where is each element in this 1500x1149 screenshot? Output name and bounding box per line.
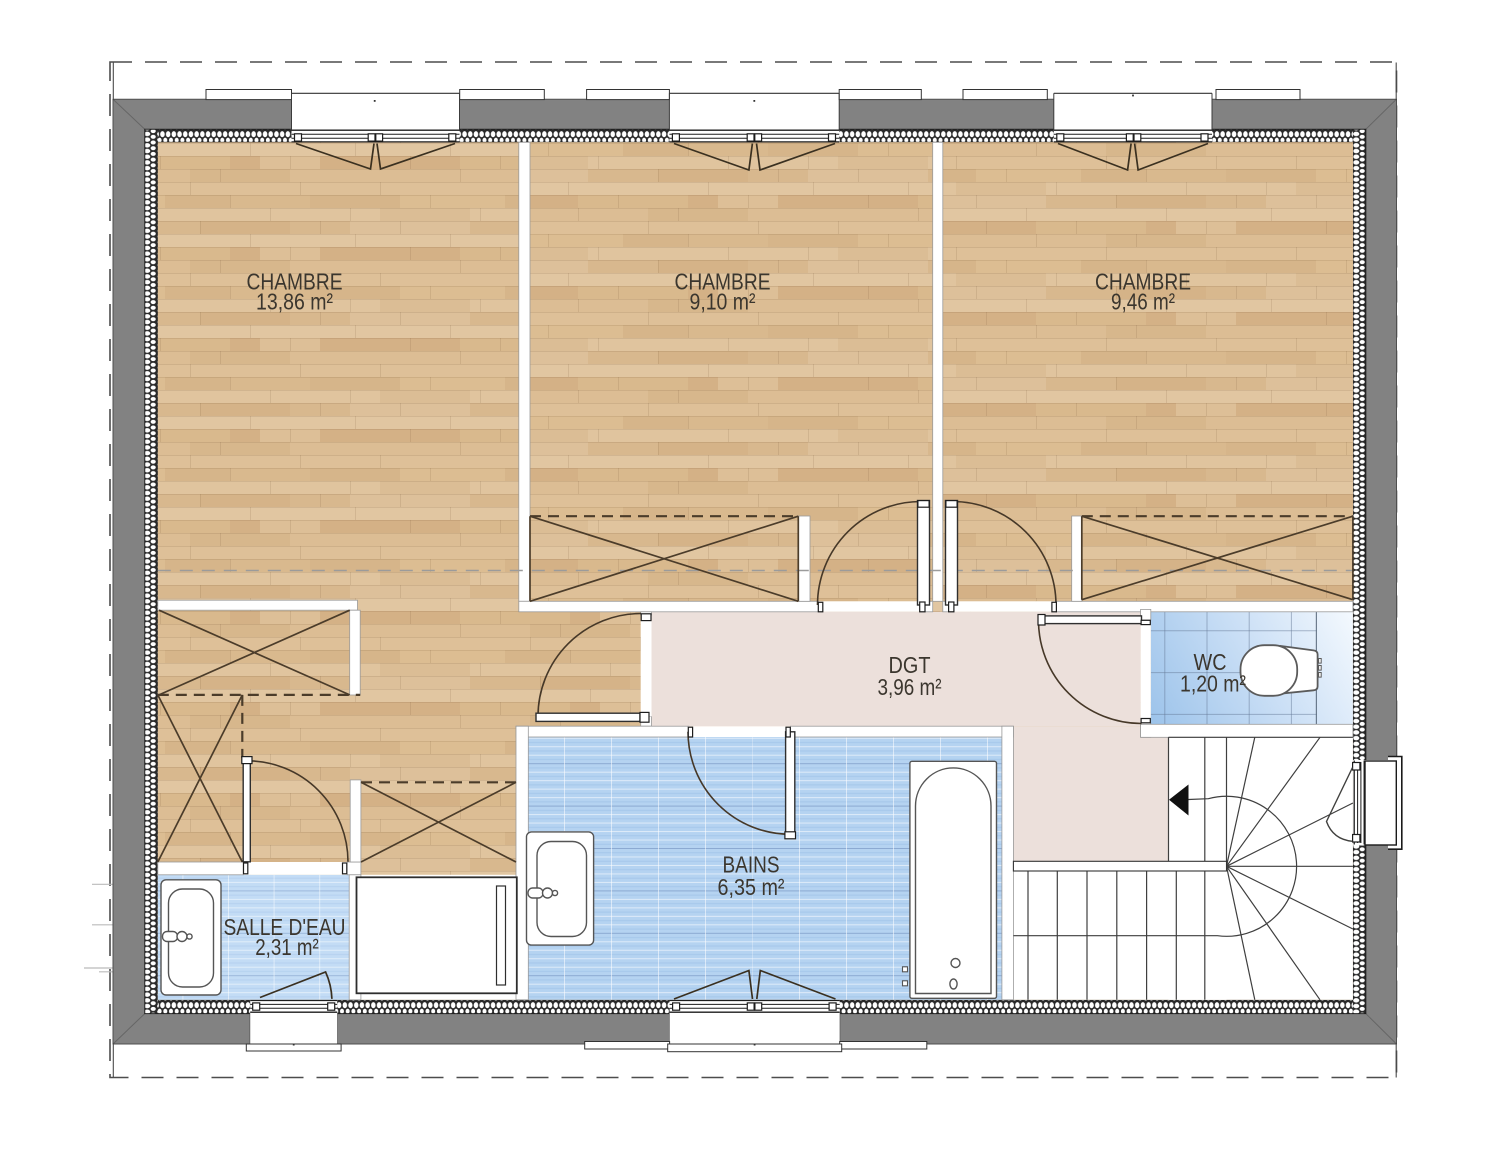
svg-text:2,31 m²: 2,31 m² xyxy=(255,934,319,960)
svg-text:9,46 m²: 9,46 m² xyxy=(1111,289,1175,315)
svg-text:13,86 m²: 13,86 m² xyxy=(256,289,333,315)
svg-text:3,96 m²: 3,96 m² xyxy=(878,674,942,700)
svg-text:6,35 m²: 6,35 m² xyxy=(718,874,785,900)
svg-text:9,10 m²: 9,10 m² xyxy=(690,289,756,315)
svg-text:1,20 m²: 1,20 m² xyxy=(1180,671,1246,697)
